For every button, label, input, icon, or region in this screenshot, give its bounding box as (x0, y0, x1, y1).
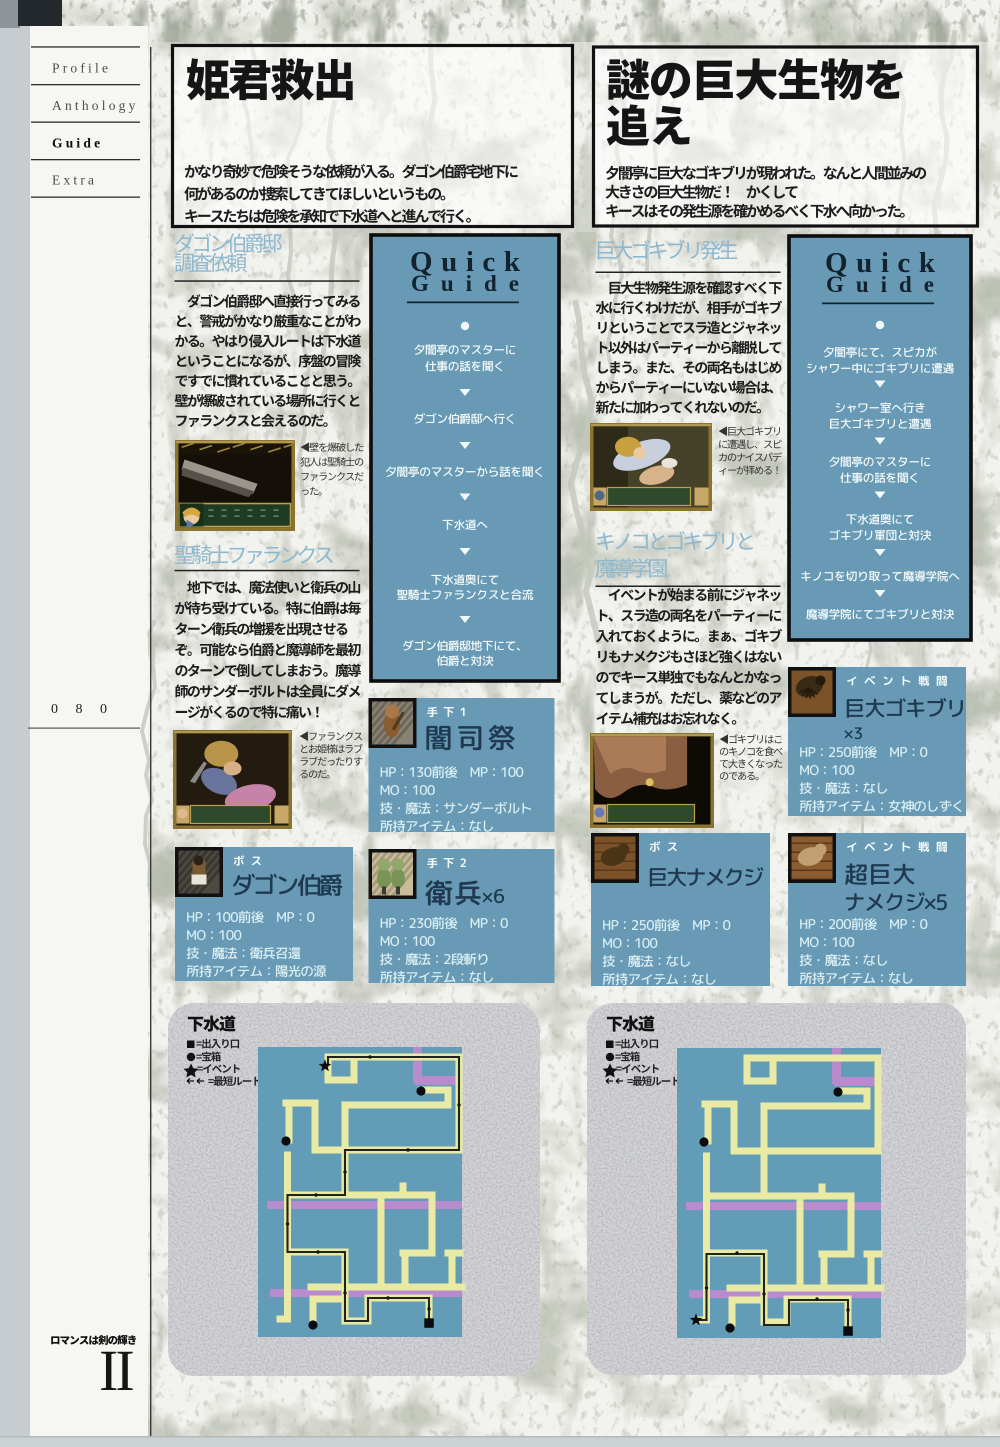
svg-text:0 8 0: 0 8 0 (51, 702, 114, 717)
svg-text:Guide: Guide (52, 136, 103, 151)
svg-text:Anthology: Anthology (52, 98, 139, 113)
svg-text:Extra: Extra (52, 173, 97, 188)
svg-text:Profile: Profile (52, 61, 111, 76)
svg-text:II: II (99, 1338, 133, 1403)
